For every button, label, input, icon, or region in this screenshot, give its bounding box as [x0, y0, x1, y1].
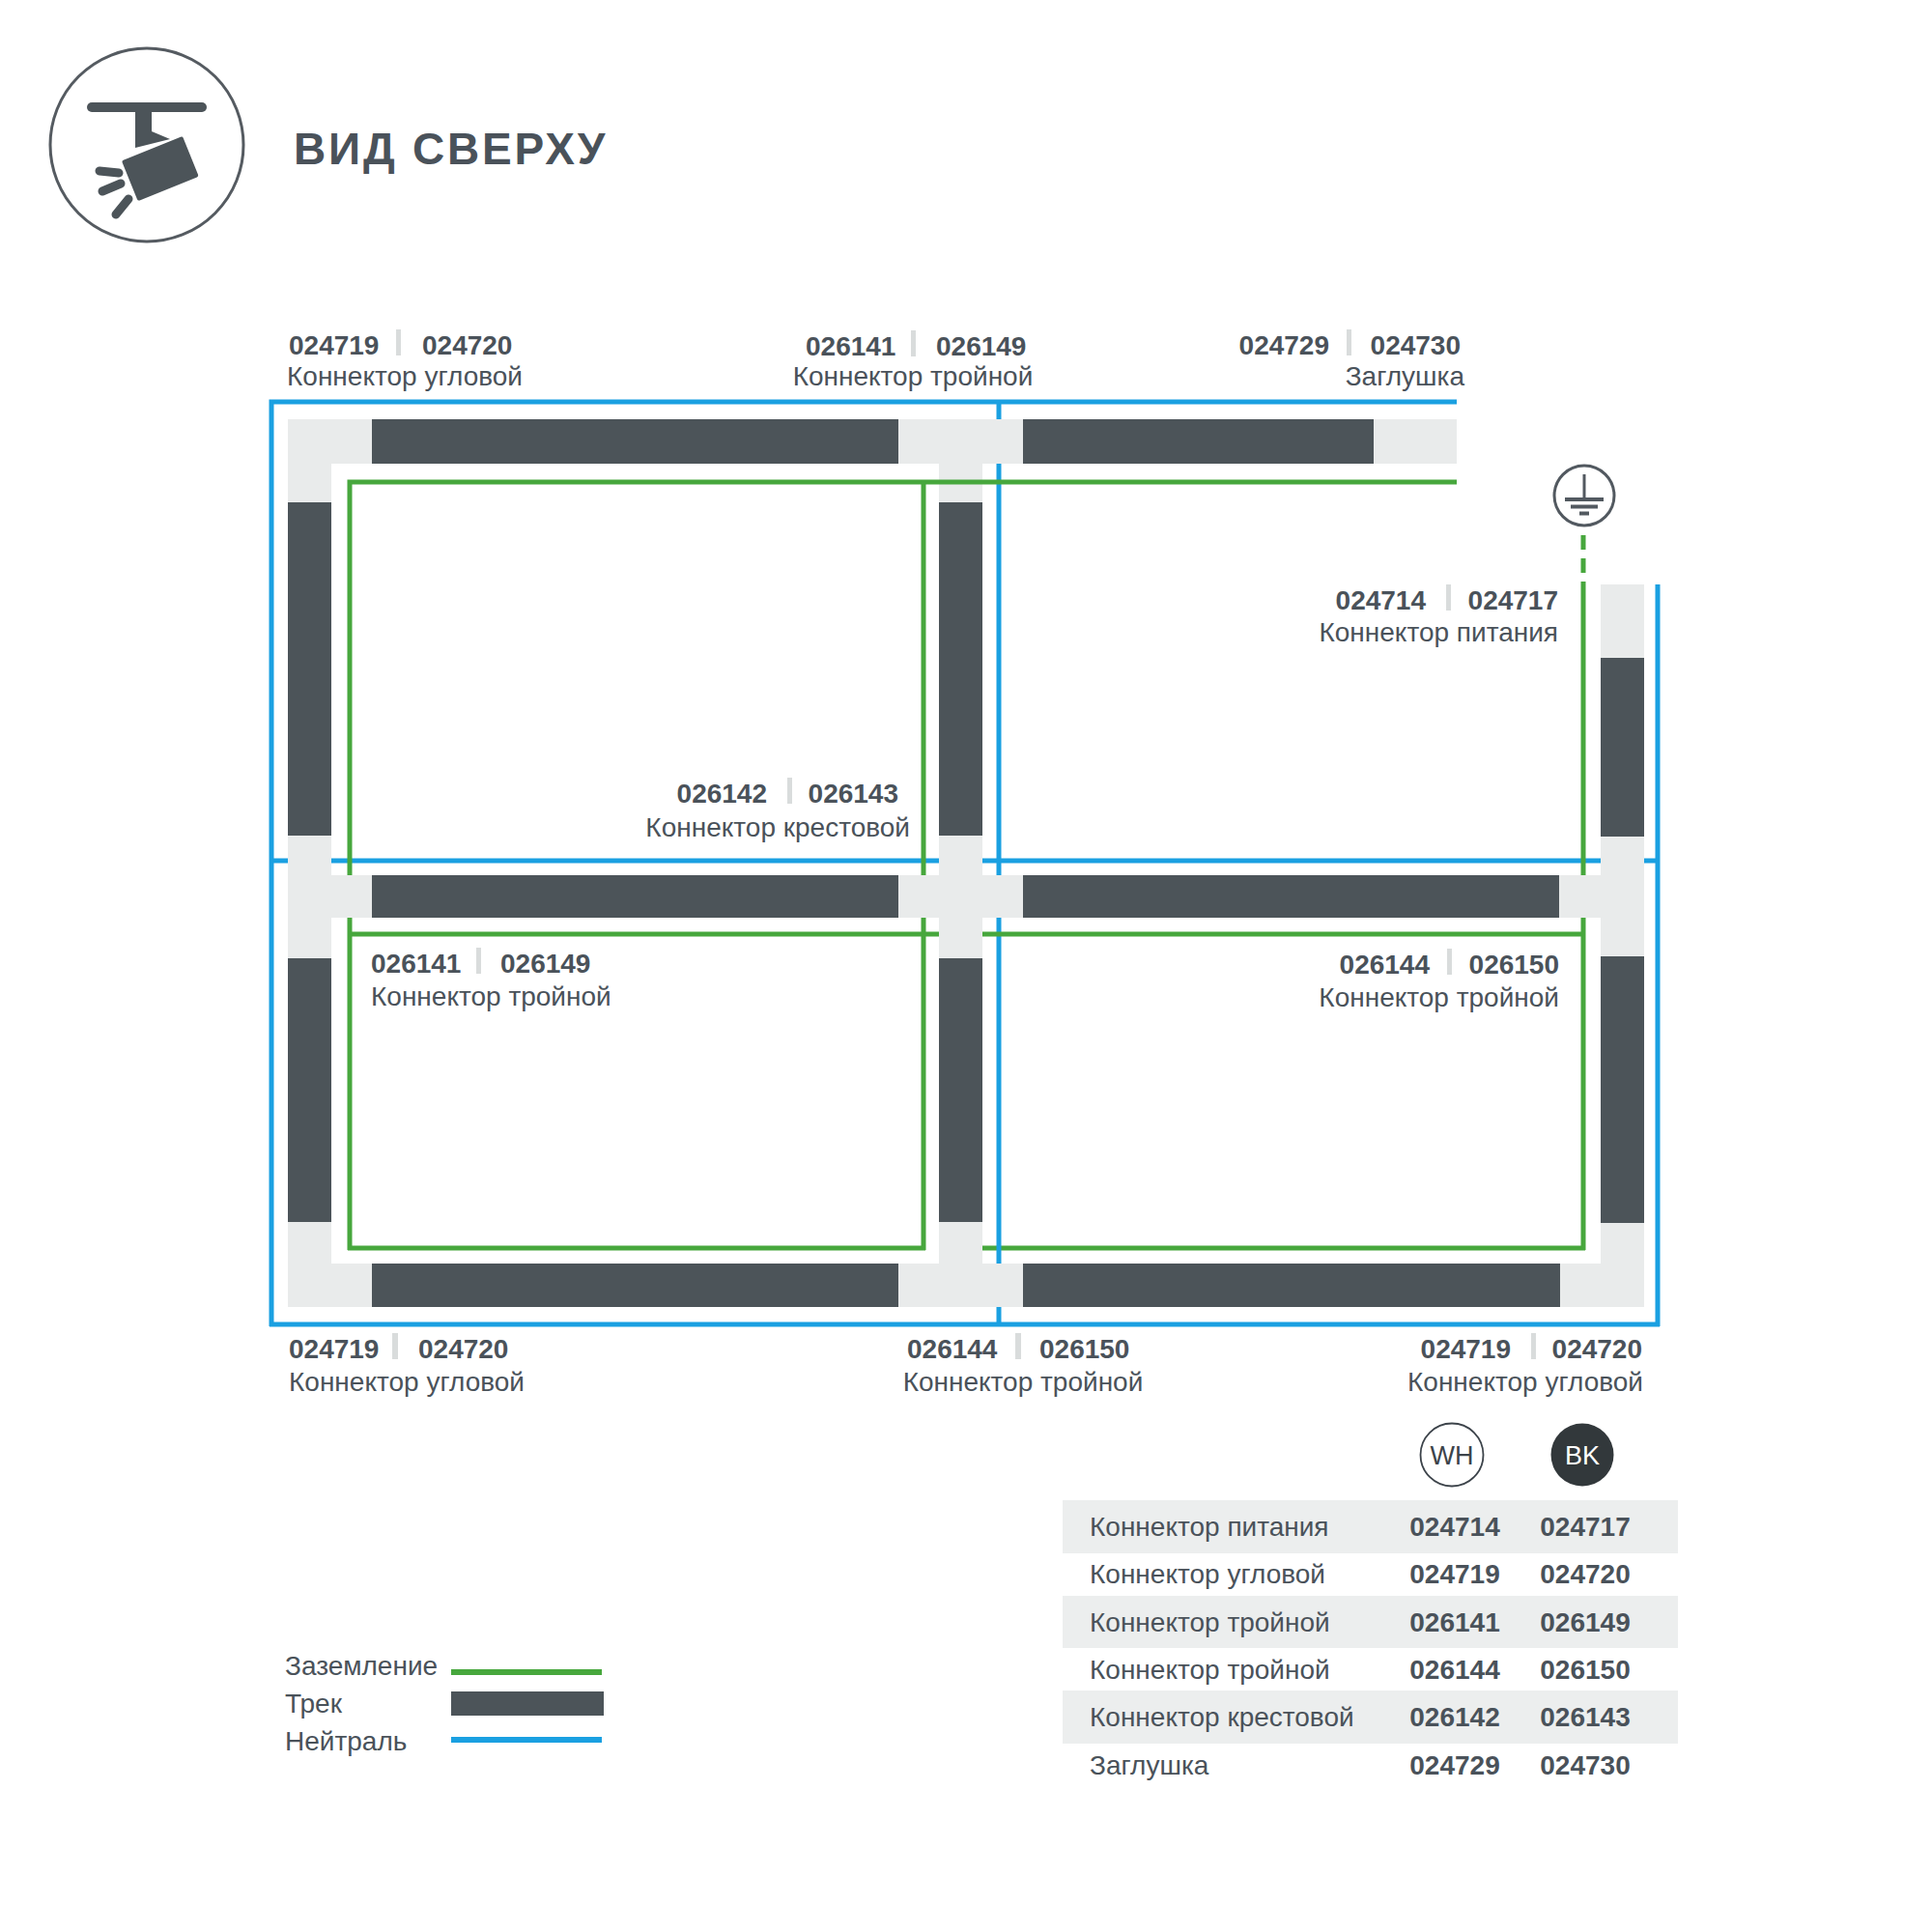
svg-text:Нейтраль: Нейтраль — [285, 1726, 407, 1756]
svg-text:Коннектор угловой: Коннектор угловой — [1407, 1367, 1643, 1397]
svg-text:024717: 024717 — [1468, 585, 1558, 615]
svg-text:Трек: Трек — [285, 1689, 343, 1719]
svg-text:026150: 026150 — [1540, 1655, 1630, 1685]
svg-text:026142: 026142 — [1409, 1702, 1499, 1732]
svg-text:026149: 026149 — [500, 949, 590, 979]
svg-text:024720: 024720 — [1540, 1559, 1630, 1589]
svg-text:024719: 024719 — [289, 330, 379, 360]
svg-text:024717: 024717 — [1540, 1512, 1630, 1542]
svg-text:Коннектор крестовой: Коннектор крестовой — [1090, 1702, 1354, 1732]
svg-text:024719: 024719 — [1421, 1334, 1511, 1364]
svg-text:Коннектор угловой: Коннектор угловой — [287, 361, 523, 391]
svg-text:Заглушка: Заглушка — [1346, 361, 1465, 391]
svg-text:Коннектор тройной: Коннектор тройной — [793, 361, 1034, 391]
svg-text:Коннектор тройной: Коннектор тройной — [1090, 1607, 1330, 1637]
svg-text:026149: 026149 — [1540, 1607, 1630, 1637]
svg-text:024720: 024720 — [422, 330, 512, 360]
svg-text:026141: 026141 — [806, 331, 895, 361]
svg-text:024729: 024729 — [1239, 330, 1329, 360]
svg-text:026150: 026150 — [1039, 1334, 1129, 1364]
svg-text:026141: 026141 — [1409, 1607, 1499, 1637]
svg-text:Коннектор тройной: Коннектор тройной — [903, 1367, 1144, 1397]
svg-text:WH: WH — [1431, 1441, 1474, 1470]
svg-text:024719: 024719 — [289, 1334, 379, 1364]
svg-text:BK: BK — [1565, 1441, 1600, 1470]
svg-text:024729: 024729 — [1409, 1750, 1499, 1780]
svg-text:Коннектор питания: Коннектор питания — [1319, 617, 1558, 647]
svg-text:026144: 026144 — [907, 1334, 998, 1364]
svg-text:026144: 026144 — [1409, 1655, 1500, 1685]
svg-text:Коннектор тройной: Коннектор тройной — [371, 981, 611, 1011]
svg-text:Заземление: Заземление — [285, 1651, 438, 1681]
svg-text:024714: 024714 — [1336, 585, 1427, 615]
svg-text:024720: 024720 — [1552, 1334, 1642, 1364]
svg-text:026141: 026141 — [371, 949, 461, 979]
svg-text:026144: 026144 — [1340, 950, 1431, 980]
svg-text:Коннектор угловой: Коннектор угловой — [1090, 1559, 1325, 1589]
svg-text:026150: 026150 — [1469, 950, 1559, 980]
svg-text:026149: 026149 — [936, 331, 1026, 361]
svg-text:Коннектор крестовой: Коннектор крестовой — [645, 812, 910, 842]
svg-text:Коннектор питания: Коннектор питания — [1090, 1512, 1329, 1542]
svg-text:Коннектор тройной: Коннектор тройной — [1090, 1655, 1330, 1685]
svg-text:Коннектор угловой: Коннектор угловой — [289, 1367, 525, 1397]
svg-text:026143: 026143 — [809, 779, 898, 809]
svg-text:024719: 024719 — [1409, 1559, 1499, 1589]
svg-text:Коннектор тройной: Коннектор тройной — [1319, 982, 1559, 1012]
svg-text:ВИД СВЕРХУ: ВИД СВЕРХУ — [294, 124, 608, 174]
svg-text:024730: 024730 — [1371, 330, 1461, 360]
svg-text:024720: 024720 — [418, 1334, 508, 1364]
svg-text:026142: 026142 — [677, 779, 767, 809]
svg-text:026143: 026143 — [1540, 1702, 1630, 1732]
svg-text:024714: 024714 — [1409, 1512, 1500, 1542]
svg-text:Заглушка: Заглушка — [1090, 1750, 1209, 1780]
svg-text:024730: 024730 — [1540, 1750, 1630, 1780]
